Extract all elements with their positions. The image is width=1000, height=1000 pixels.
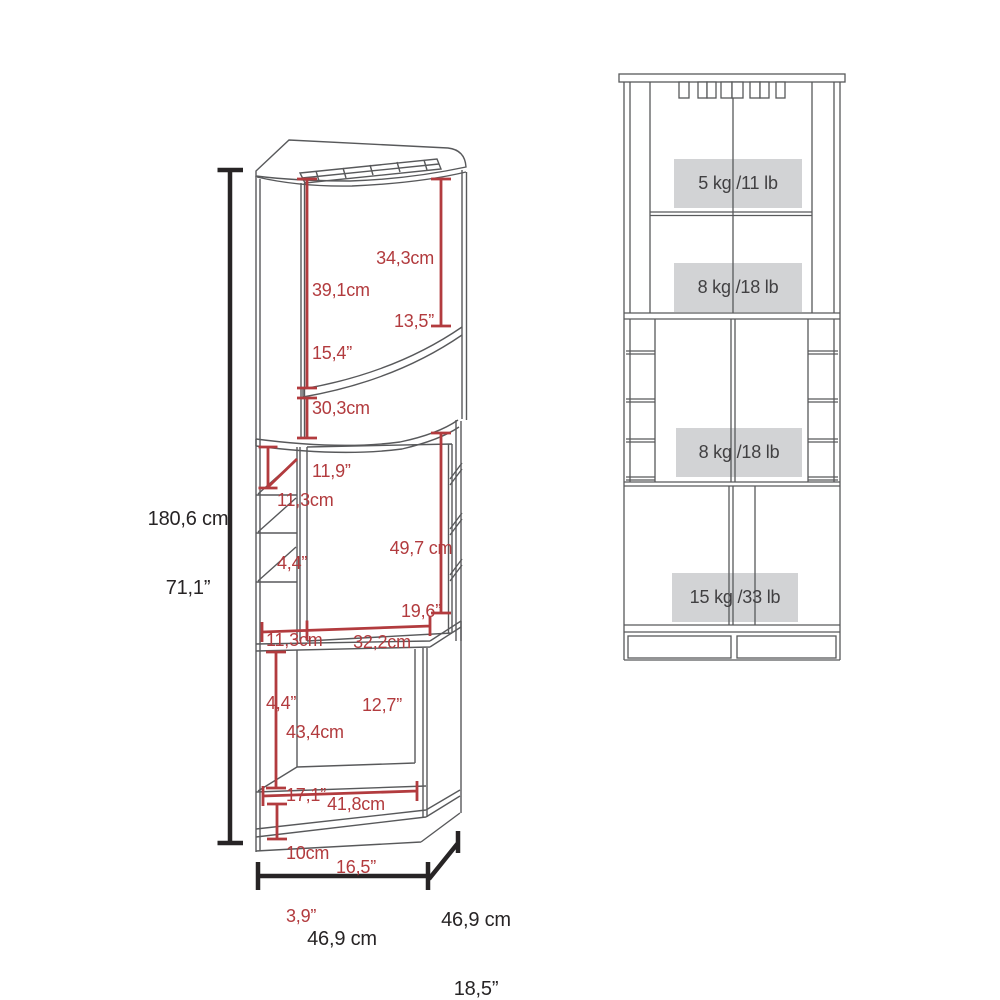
dim-cm-value: 10cm: [286, 843, 329, 864]
dim-label-width: 46,9 cm 18,5”: [300, 882, 384, 1000]
corner-bar-cabinet-dimension-diagram: 34,3cm 13,5” 39,1cm 15,4” 30,3cm 11,9” 1…: [0, 0, 1000, 1000]
capacity-value: 15 kg /33 lb: [690, 587, 781, 608]
dim-inch-value: 18,5”: [434, 978, 518, 1000]
capacity-boxes: [672, 159, 802, 622]
capacity-value: 5 kg /11 lb: [698, 173, 778, 194]
capacity-value: 8 kg /18 lb: [699, 442, 780, 463]
dim-label-total-height: 180,6 cm 71,1”: [142, 462, 234, 646]
dim-inch-value: 4,4”: [277, 553, 334, 574]
dim-cm-value: 49,7 cm: [376, 538, 466, 559]
dim-cm-value: 11,3cm: [277, 490, 334, 511]
capacity-label-middle-cabinet: 8 kg /18 lb: [676, 428, 802, 477]
dim-cm-value: 32,2cm: [342, 632, 422, 653]
stemware-rack-front-notches: [679, 82, 785, 98]
dim-inch-value: 12,7”: [342, 695, 422, 716]
dim-label-door-width: 32,2cm 12,7”: [342, 590, 422, 758]
dim-cm-value: 11,3cm: [266, 630, 323, 651]
dim-cm-value: 30,3cm: [312, 398, 370, 419]
capacity-label-lower-cabinet: 15 kg /33 lb: [672, 573, 798, 622]
dim-cm-value: 43,4cm: [286, 722, 344, 743]
dim-cm-value: 39,1cm: [312, 280, 370, 301]
dim-cm-value: 46,9 cm: [434, 909, 518, 932]
dim-inch-value: 71,1”: [142, 577, 234, 600]
capacity-label-top-shelf: 5 kg /11 lb: [674, 159, 802, 208]
capacity-label-second-shelf: 8 kg /18 lb: [674, 263, 802, 312]
dim-cm-value: 46,9 cm: [300, 928, 384, 951]
dim-label-depth: 46,9 cm 18,5”: [434, 863, 518, 1000]
capacity-value: 8 kg /18 lb: [698, 277, 779, 298]
dim-cm-value: 180,6 cm: [142, 508, 234, 531]
